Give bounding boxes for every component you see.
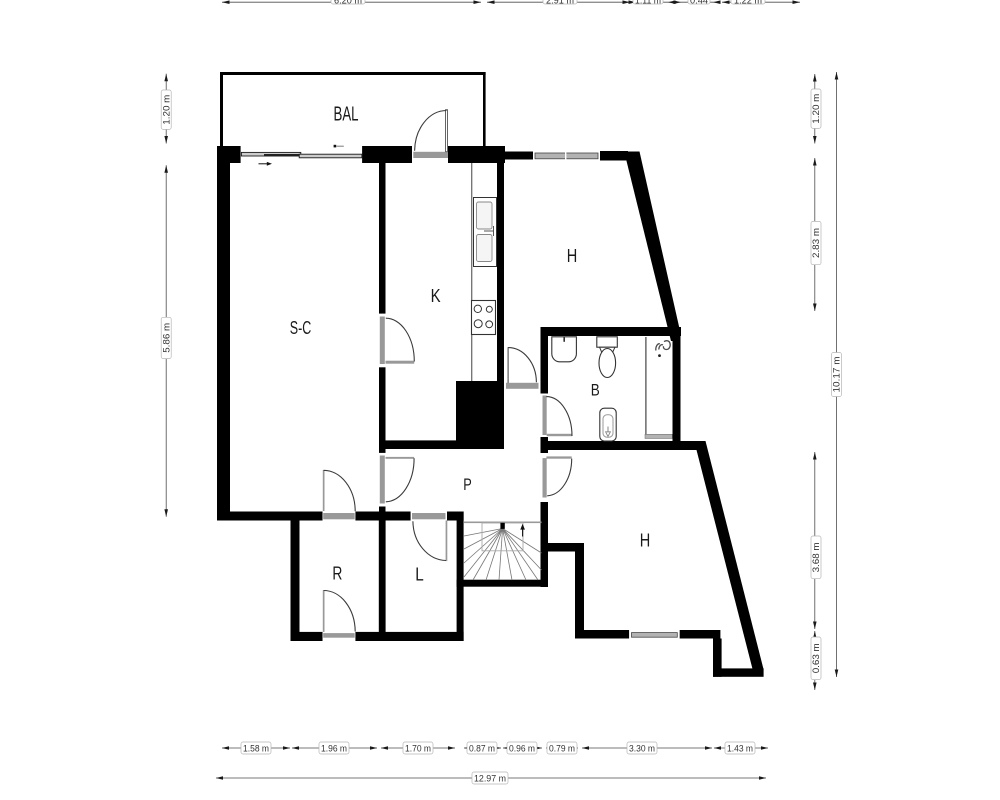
svg-text:R: R <box>332 564 342 584</box>
svg-text:BAL: BAL <box>334 104 359 126</box>
svg-text:H: H <box>640 531 651 551</box>
svg-text:H: H <box>567 246 578 266</box>
svg-text:0.87 m: 0.87 m <box>469 743 495 753</box>
svg-text:0.63 m: 0.63 m <box>811 643 821 673</box>
svg-text:0.96 m: 0.96 m <box>509 743 535 753</box>
svg-text:L: L <box>415 565 424 585</box>
svg-text:3.68 m: 3.68 m <box>811 542 821 572</box>
svg-text:3.30 m: 3.30 m <box>629 743 655 753</box>
svg-text:10.17 m: 10.17 m <box>832 357 842 393</box>
svg-text:1.11 m: 1.11 m <box>635 0 661 6</box>
svg-text:1.96 m: 1.96 m <box>321 743 347 753</box>
svg-text:0.79 m: 0.79 m <box>549 743 575 753</box>
svg-text:2.91 m: 2.91 m <box>546 0 574 6</box>
svg-text:1.22 m: 1.22 m <box>734 0 762 6</box>
svg-text:5.86 m: 5.86 m <box>161 323 171 353</box>
svg-text:12.97 m: 12.97 m <box>474 773 506 783</box>
svg-text:S-C: S-C <box>290 318 312 338</box>
svg-text:1.20 m: 1.20 m <box>161 95 171 125</box>
svg-text:1.43 m: 1.43 m <box>727 743 753 753</box>
svg-text:B: B <box>591 381 600 400</box>
svg-text:6.20 m: 6.20 m <box>334 0 362 6</box>
svg-text:1.20 m: 1.20 m <box>811 94 821 124</box>
svg-text:0.44: 0.44 <box>690 0 708 6</box>
svg-text:K: K <box>431 286 441 306</box>
svg-text:1.70 m: 1.70 m <box>405 743 431 753</box>
svg-text:P: P <box>463 475 472 494</box>
svg-text:1.58 m: 1.58 m <box>243 743 269 753</box>
svg-text:2.83 m: 2.83 m <box>811 228 821 258</box>
